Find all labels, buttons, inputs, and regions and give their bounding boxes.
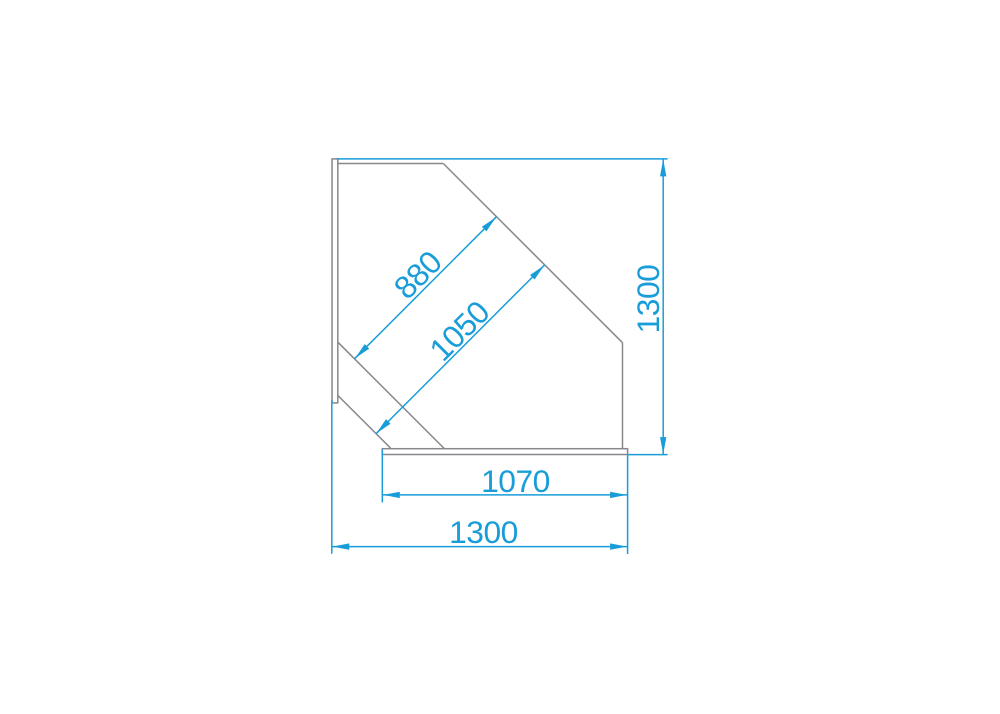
svg-text:1300: 1300	[449, 514, 518, 550]
svg-text:1300: 1300	[630, 265, 666, 334]
svg-text:1070: 1070	[481, 463, 550, 499]
